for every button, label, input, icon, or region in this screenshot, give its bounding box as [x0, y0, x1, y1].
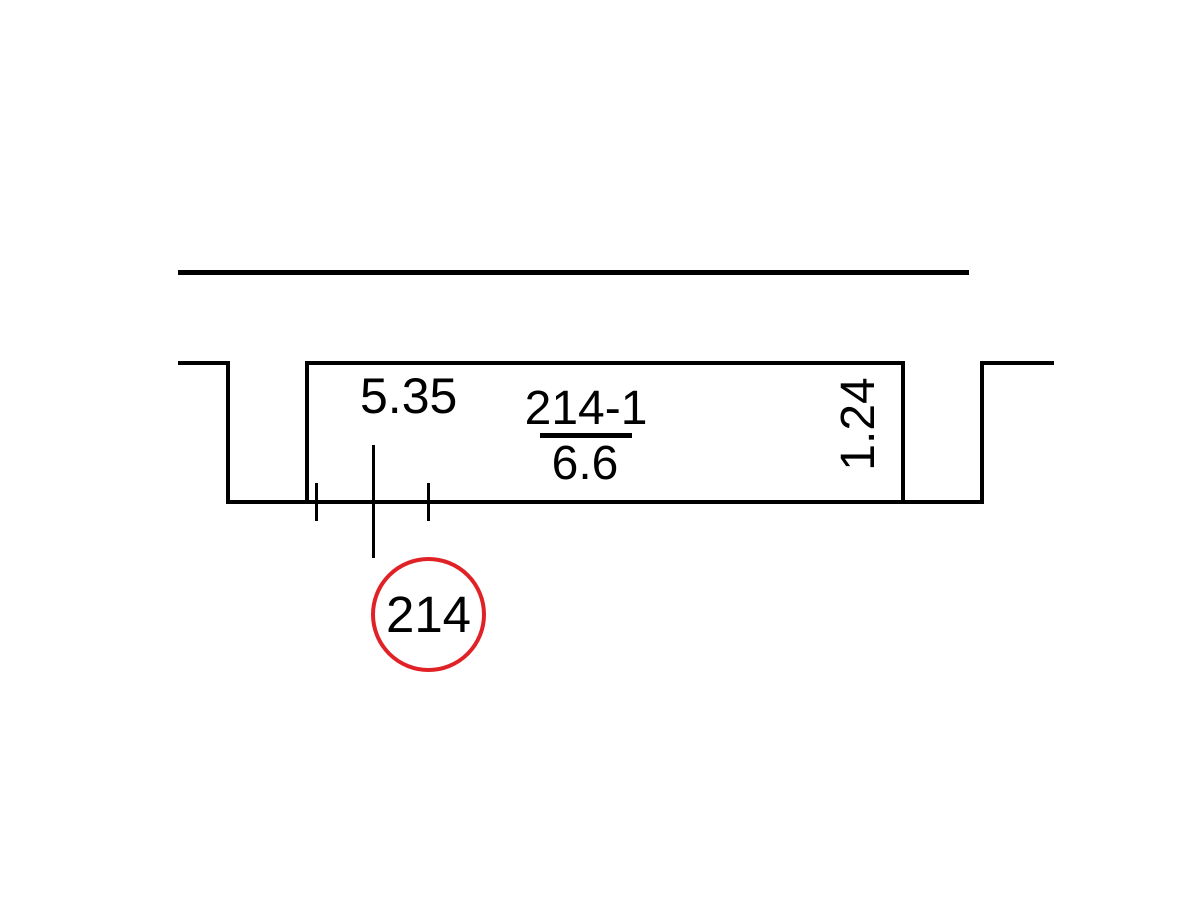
room-number-label: 214-1 [525, 385, 648, 433]
wall-right-vertical [980, 361, 984, 504]
room-area-label: 6.6 [552, 440, 619, 488]
room-callout-label: 214 [386, 589, 471, 640]
wall-right-top-line [980, 361, 1054, 365]
ceiling-line [178, 270, 969, 275]
dimension-tick-left [315, 483, 318, 521]
dimension-width-label: 5.35 [360, 371, 457, 421]
callout-leader-line [372, 445, 375, 558]
room-callout-circle: 214 [371, 557, 486, 672]
dimension-depth-label: 1.24 [835, 377, 883, 470]
floor-plan-drawing: 5.35 214-1 6.6 1.24 214 [0, 0, 1200, 900]
wall-left-vertical [226, 361, 230, 504]
wall-left-top-line [178, 361, 230, 365]
dimension-tick-right [427, 483, 430, 521]
